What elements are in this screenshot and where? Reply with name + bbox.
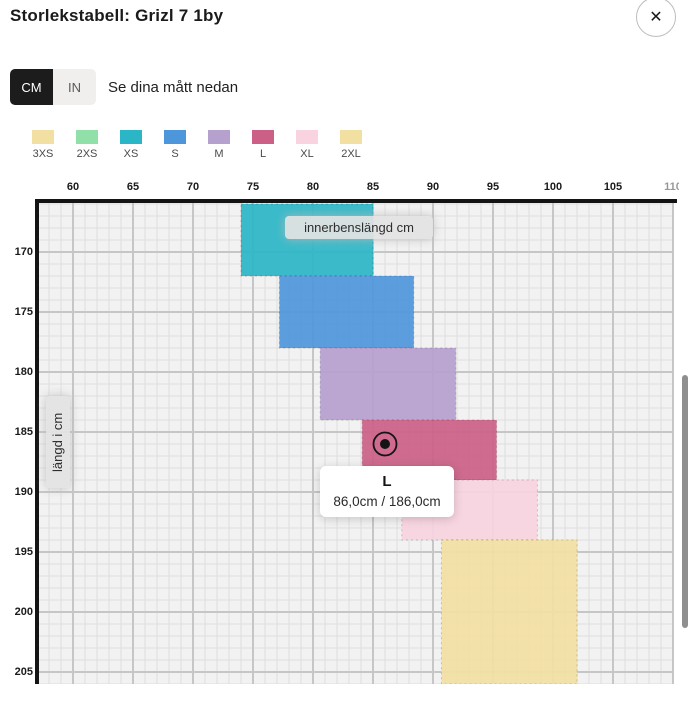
- tooltip-size: L: [320, 473, 454, 490]
- x-axis-label: innerbenslängd cm: [285, 216, 433, 239]
- legend-label: M: [197, 148, 241, 160]
- vertical-scrollbar-thumb[interactable]: [682, 375, 688, 628]
- page-title: Storlekstabell: Grizl 7 1by: [10, 6, 223, 26]
- x-axis-ticks: 6065707580859095100105110: [0, 181, 679, 195]
- legend-swatch-3XS: [32, 130, 54, 144]
- legend-swatch-2XS: [76, 130, 98, 144]
- close-icon: ✕: [649, 7, 662, 27]
- x-tick-105: 105: [598, 181, 628, 193]
- x-tick-70: 70: [178, 181, 208, 193]
- unit-in-button[interactable]: IN: [53, 69, 96, 105]
- legend-swatch-XS: [120, 130, 142, 144]
- size-legend: 3XS2XSXSSMLXL2XL: [0, 130, 690, 166]
- legend-item-L: L: [241, 130, 285, 160]
- x-tick-90: 90: [418, 181, 448, 193]
- legend-label: L: [241, 148, 285, 160]
- y-tick-180: 180: [0, 365, 33, 379]
- y-tick-205: 205: [0, 665, 33, 679]
- x-tick-80: 80: [298, 181, 328, 193]
- x-tick-100: 100: [538, 181, 568, 193]
- legend-item-2XS: 2XS: [65, 130, 109, 160]
- legend-item-M: M: [197, 130, 241, 160]
- legend-label: XS: [109, 148, 153, 160]
- x-tick-75: 75: [238, 181, 268, 193]
- y-tick-170: 170: [0, 245, 33, 259]
- size-tooltip: L 86,0cm / 186,0cm: [320, 466, 454, 517]
- y-tick-200: 200: [0, 605, 33, 619]
- legend-label: 2XS: [65, 148, 109, 160]
- y-tick-185: 185: [0, 425, 33, 439]
- size-chart[interactable]: [39, 203, 677, 684]
- size-region-S[interactable]: [279, 276, 413, 348]
- x-tick-65: 65: [118, 181, 148, 193]
- y-axis-label: längd i cm: [46, 396, 70, 488]
- size-region-XS[interactable]: [241, 204, 373, 276]
- y-tick-175: 175: [0, 305, 33, 319]
- user-measurement-marker-dot: [380, 439, 390, 449]
- legend-item-XL: XL: [285, 130, 329, 160]
- legend-label: 2XL: [329, 148, 373, 160]
- x-tick-95: 95: [478, 181, 508, 193]
- legend-swatch-L: [252, 130, 274, 144]
- legend-item-2XL: 2XL: [329, 130, 373, 160]
- tooltip-measurements: 86,0cm / 186,0cm: [320, 494, 454, 509]
- legend-label: S: [153, 148, 197, 160]
- x-tick-85: 85: [358, 181, 388, 193]
- legend-label: XL: [285, 148, 329, 160]
- size-region-2XL[interactable]: [441, 540, 577, 684]
- legend-item-XS: XS: [109, 130, 153, 160]
- x-tick-110: 110: [658, 181, 679, 193]
- legend-swatch-2XL: [340, 130, 362, 144]
- legend-swatch-S: [164, 130, 186, 144]
- y-tick-190: 190: [0, 485, 33, 499]
- measurement-hint: Se dina mått nedan: [108, 69, 238, 105]
- legend-item-S: S: [153, 130, 197, 160]
- y-tick-195: 195: [0, 545, 33, 559]
- legend-swatch-M: [208, 130, 230, 144]
- close-button[interactable]: ✕: [636, 0, 676, 37]
- legend-swatch-XL: [296, 130, 318, 144]
- x-tick-60: 60: [58, 181, 88, 193]
- size-region-M[interactable]: [320, 348, 456, 420]
- y-axis-ticks: 170175180185190195200205: [0, 0, 33, 702]
